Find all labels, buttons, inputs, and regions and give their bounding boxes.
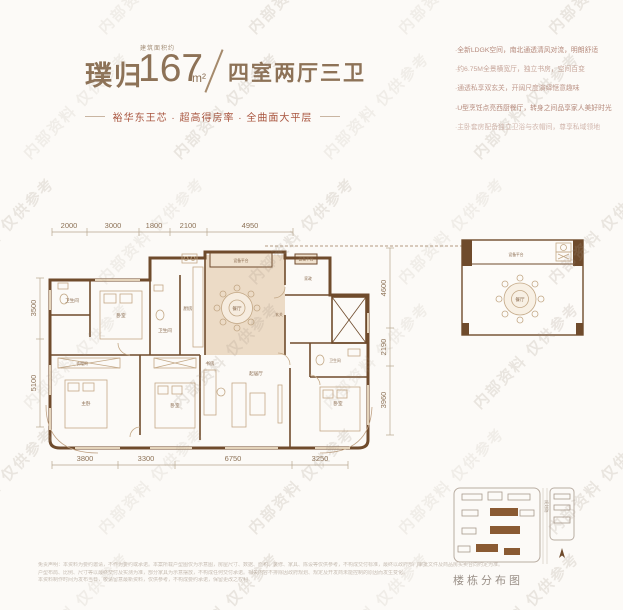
detail-dining-label: 餐厅: [515, 296, 525, 303]
site-buildings-outline: [458, 492, 534, 552]
disclaimer: 免责声明：本资料为要约邀请，不作为要约或承诺。本案所载户型图仅为示意图，房屋尺寸…: [38, 562, 616, 585]
site-buildings-highlight: [476, 508, 520, 555]
project-name: 璞归: [85, 54, 143, 93]
tagline-row: 裕华东王芯 · 超高得房率 · 全曲面大平层: [85, 109, 340, 124]
feature-item: ·约6.75M全景横宽厅，独立书房，空间百变: [455, 60, 620, 79]
site-buildings-right: [554, 494, 570, 523]
room-label: 设备平台: [298, 257, 313, 262]
dim-label: 2190: [379, 339, 388, 356]
watermark-text: 内部资料 仅供参考: [543, 0, 623, 38]
tagline: 裕华东王芯 · 超高得房率 · 全曲面大平层: [113, 109, 313, 124]
room-label: 设备平台: [233, 258, 248, 263]
detail-platform-label: 设备平台: [508, 252, 523, 257]
room-label: 主卧: [81, 400, 91, 407]
dim-label: 3800: [77, 454, 94, 463]
watermark-text: 内部资料 仅供参考: [243, 0, 358, 38]
dimension-bottom: [52, 461, 348, 469]
feature-item: ·U型烹饪点亮西厨餐厅，转身之间品享家人美好时光: [455, 99, 620, 118]
watermark-text: 内部资料 仅供参考: [0, 0, 59, 38]
dim-label: 1800: [146, 221, 163, 230]
tagline-line-right: [320, 116, 340, 117]
watermark-text: 内部资料 仅供参考: [393, 0, 508, 38]
room-label: 起居厅: [249, 371, 263, 377]
room-label: 书房: [205, 360, 215, 367]
feature-list: ·全新LDGK空间，南北通透清风对流，明朗舒适 ·约6.75M全景横宽厅，独立书…: [455, 41, 620, 137]
site-road-label: 规划路: [543, 500, 550, 513]
room-label: 衣帽间: [76, 361, 88, 366]
room-label: 玄关: [275, 312, 283, 317]
area-unit: m²: [192, 71, 206, 85]
dim-label: 4600: [379, 280, 388, 297]
disclaimer-line: 本资料制作时间为发布当日，敬请留意最新资料，仅供参考，不构成要约承诺，保留更改之…: [38, 577, 616, 585]
rooms-spec: 四室两厅三卫: [228, 57, 366, 87]
dim-label: 3000: [105, 221, 122, 230]
dining-detail: 设备平台 餐厅: [462, 240, 583, 335]
room-label: 卫生间: [329, 358, 341, 363]
dim-label: 3300: [138, 454, 155, 463]
dim-label: 4950: [242, 221, 259, 230]
slash-divider: [204, 49, 223, 92]
elevator: [332, 297, 366, 343]
dim-label: 3960: [379, 392, 388, 409]
room-label: 家政: [304, 276, 312, 281]
dim-label: 3250: [312, 454, 329, 463]
room-label: 餐厅: [232, 305, 242, 312]
feature-item: ·主卧套房配备独立卫浴与衣帽间，尊享私域领地: [455, 118, 620, 137]
room-label: 卫生间: [158, 327, 172, 334]
feature-item: ·通透私享双玄关，开阔尺度演绎惬意趣味: [455, 79, 620, 98]
dim-label: 3500: [29, 300, 38, 317]
disclaimer-line: 免责声明：本资料为要约邀请，不作为要约或承诺。本案所载户型图仅为示意图，房屋尺寸…: [38, 562, 616, 570]
room-label: 厨房: [183, 305, 193, 312]
dim-label: 6750: [225, 454, 242, 463]
dim-label: 2100: [180, 221, 197, 230]
floorplan: 2000 3000 1800 2100 4950 3500 5100 4600 …: [20, 215, 600, 480]
feature-item: ·全新LDGK空间，南北通透清风对流，明朗舒适: [455, 41, 620, 60]
room-label: 卧室: [170, 402, 180, 409]
disclaimer-line: 户型布局、比例、尺寸等以最终交付及实测为准，部分家具为示意摆放，不构成任何交付承…: [38, 570, 616, 578]
room-label: 卧室: [333, 400, 343, 407]
dim-label: 2000: [61, 221, 78, 230]
dim-label: 5100: [29, 375, 38, 392]
watermark-text: 内部资料 仅供参考: [618, 298, 623, 413]
tagline-line-left: [85, 116, 105, 117]
room-label: 卧室: [116, 312, 126, 319]
room-label: 卫生间: [65, 297, 79, 304]
watermark-text: 内部资料 仅供参考: [618, 548, 623, 610]
north-arrow-icon: [559, 548, 565, 558]
watermark-text: 内部资料 仅供参考: [93, 0, 208, 38]
balcony-arc: [46, 405, 372, 453]
